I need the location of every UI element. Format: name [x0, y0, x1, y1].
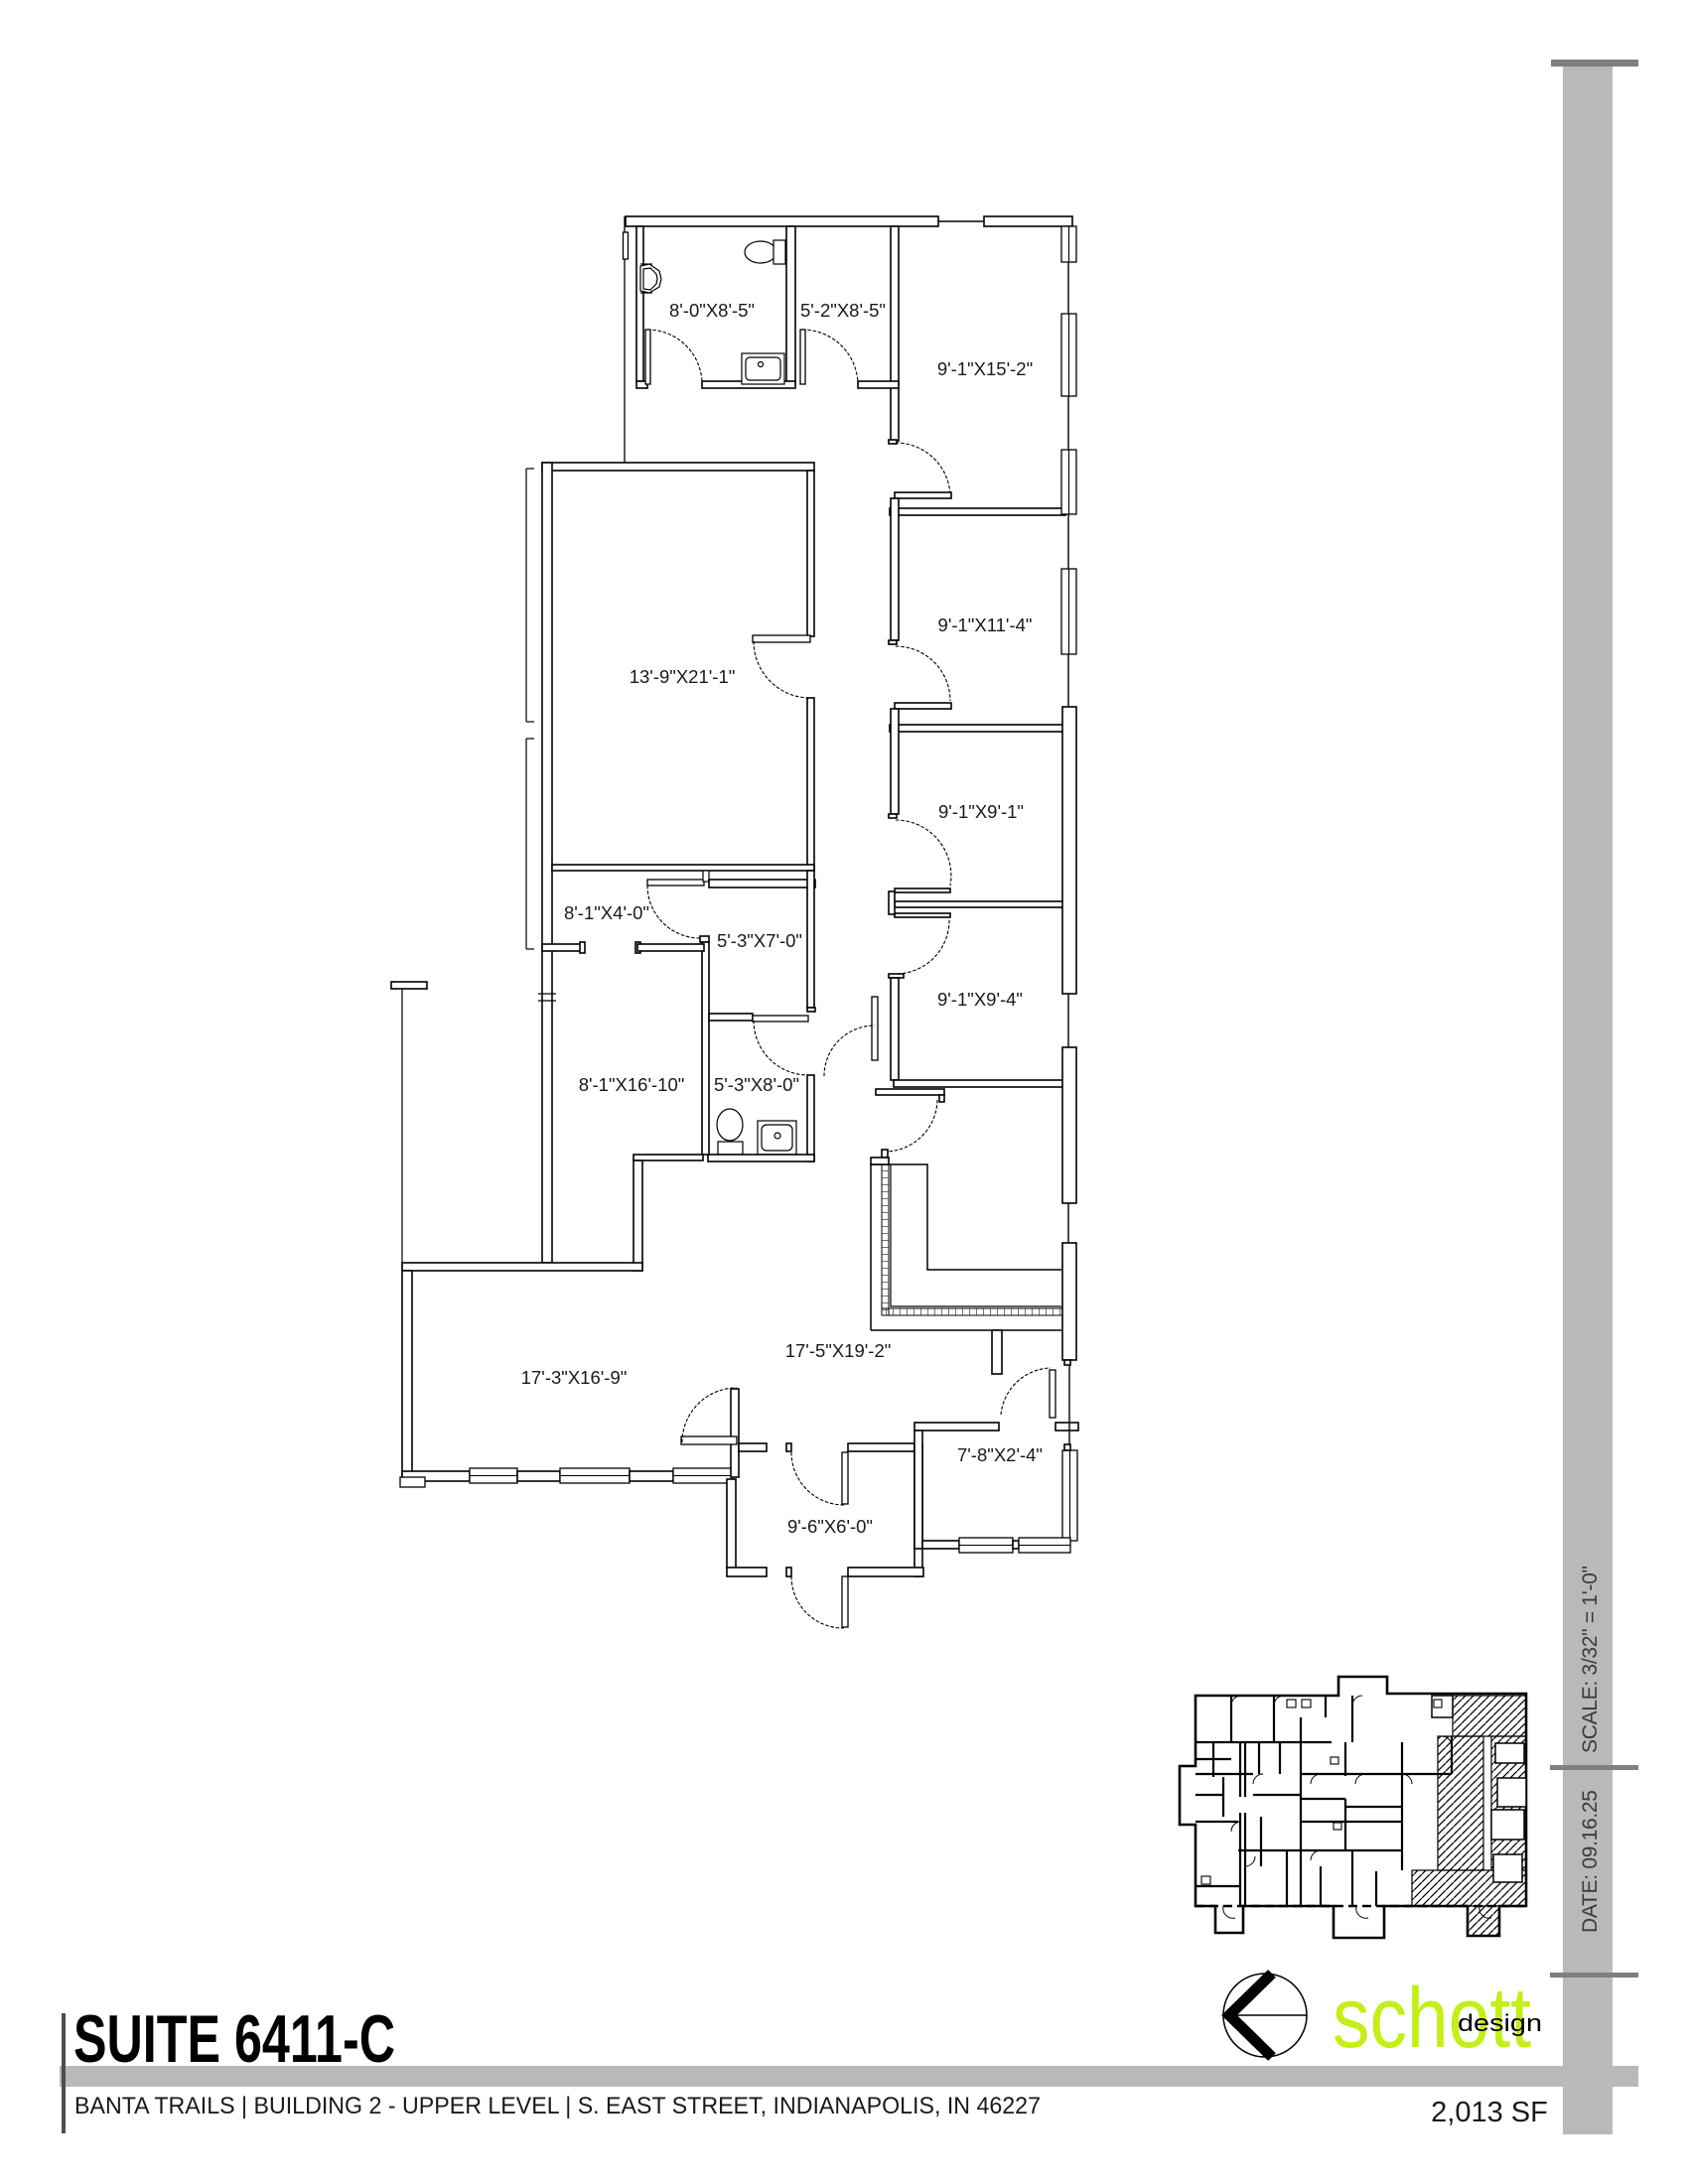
svg-text:17'-5"X19'-2": 17'-5"X19'-2": [785, 1340, 892, 1361]
svg-text:BANTA TRAILS | BUILDING 2 -: BANTA TRAILS | BUILDING 2 - UPPER LEVEL …: [74, 2093, 1041, 2119]
svg-text:2,013 SF: 2,013 SF: [1431, 2097, 1548, 2128]
svg-text:9'-1"X9'-4": 9'-1"X9'-4": [937, 989, 1023, 1010]
svg-text:design: design: [1458, 2010, 1542, 2037]
svg-text:5'-3"X7'-0": 5'-3"X7'-0": [717, 930, 802, 951]
svg-text:SUITE 6411-C: SUITE 6411-C: [73, 2001, 395, 2077]
svg-text:8'-0"X8'-5": 8'-0"X8'-5": [669, 300, 755, 321]
svg-text:13'-9"X21'-1": 13'-9"X21'-1": [630, 666, 736, 687]
svg-text:9'-1"X11'-4": 9'-1"X11'-4": [938, 614, 1033, 635]
svg-text:9'-1"X15'-2": 9'-1"X15'-2": [937, 358, 1033, 379]
svg-text:5'-3"X8'-0": 5'-3"X8'-0": [714, 1074, 799, 1095]
svg-text:8'-1"X16'-10": 8'-1"X16'-10": [579, 1074, 685, 1095]
svg-text:DATE: 09.16.25: DATE: 09.16.25: [1579, 1790, 1602, 1933]
svg-text:17'-3"X16'-9": 17'-3"X16'-9": [521, 1367, 628, 1388]
svg-text:8'-1"X4'-0": 8'-1"X4'-0": [564, 902, 649, 923]
svg-text:7'-8"X2'-4": 7'-8"X2'-4": [957, 1444, 1043, 1465]
svg-text:5'-2"X8'-5": 5'-2"X8'-5": [800, 300, 886, 321]
svg-text:9'-1"X9'-1": 9'-1"X9'-1": [938, 801, 1024, 822]
svg-text:SCALE: 3/32" = 1'-0": SCALE: 3/32" = 1'-0": [1579, 1566, 1602, 1753]
svg-text:9'-6"X6'-0": 9'-6"X6'-0": [787, 1516, 873, 1537]
